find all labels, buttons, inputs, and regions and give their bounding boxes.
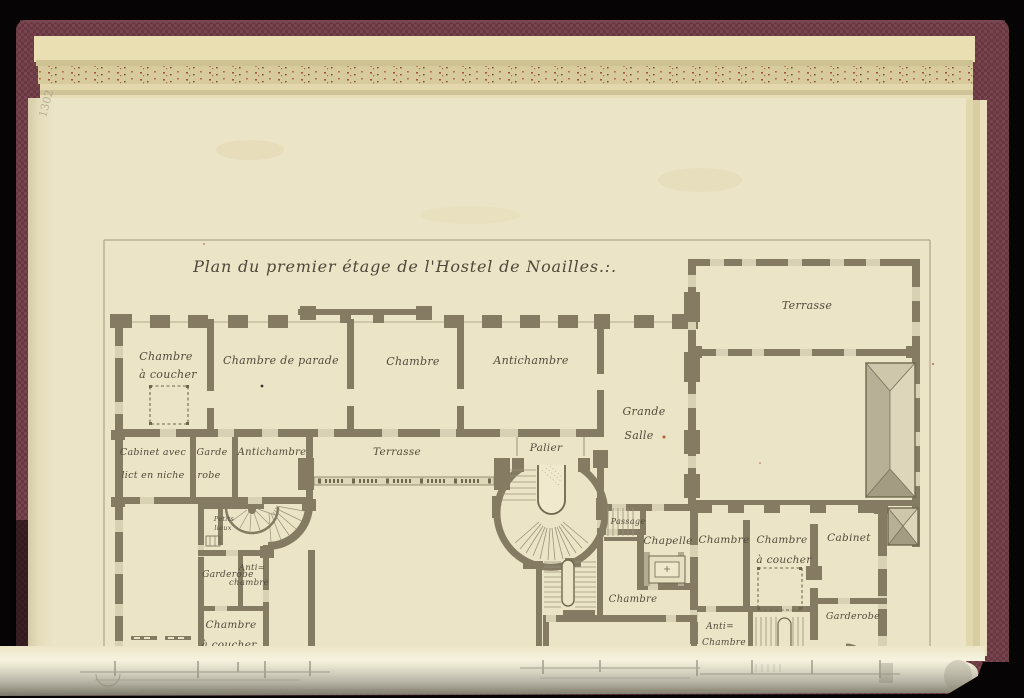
room-label-garderobe-se: Garderobe: [826, 611, 880, 622]
room-label-chambre-n: Chambre: [386, 355, 440, 368]
room-label-grande-salle-2: Salle: [624, 429, 653, 442]
room-label-chambre-a-coucher-nw: Chambre: [139, 350, 193, 363]
room-label-passage: Passage: [610, 517, 646, 526]
book-scan: 1302 Plan du premier étage de l'Hostel d…: [0, 0, 1024, 698]
room-label-cabinet-se: Cabinet: [827, 532, 871, 544]
room-label-terrasse-ne: Terrasse: [782, 299, 832, 312]
room-label-antichambre-n: Antichambre: [492, 354, 569, 367]
room-label-chapelle: Chapelle: [643, 535, 692, 547]
room-label-garde-robe-2: robe: [197, 470, 220, 481]
room-label-chambre-a-coucher-nw-2: à coucher: [139, 368, 197, 381]
room-label-chambre-a-coucher-sw: Chambre: [205, 619, 256, 631]
room-label-chambre-a-coucher-se: Chambre: [756, 534, 807, 546]
room-label-petits-lieux-2: lieux: [214, 524, 231, 532]
room-label-antichambre-sw: Anti=: [238, 563, 265, 573]
room-label-chambre-a-coucher-se-2: à coucher: [756, 554, 812, 566]
room-label-antichambre-sw-2: chambre: [229, 578, 269, 588]
room-label-palier: Palier: [529, 442, 563, 454]
room-label-cabinet-niche: Cabinet avec: [120, 447, 187, 458]
room-label-cabinet-niche-2: lict en niche: [121, 470, 184, 481]
page-curl: [0, 646, 1024, 698]
scanned-book-photo: 1302 Plan du premier étage de l'Hostel d…: [0, 0, 1024, 698]
room-label-garde-robe: Garde: [197, 447, 228, 458]
room-label-antichambre-se: Anti=: [705, 622, 734, 632]
room-label-terrasse-mid: Terrasse: [373, 446, 421, 458]
plan-title: Plan du premier étage de l'Hostel de Noa…: [192, 257, 617, 276]
room-label-chambre-de-parade: Chambre de parade: [223, 354, 339, 367]
room-label-grande-salle: Grande: [622, 405, 665, 418]
room-label-petits-lieux: Petits: [213, 515, 235, 523]
room-label-antichambre-w: Antichambre: [237, 447, 307, 458]
room-label-chambre-se: Chambre: [698, 534, 749, 546]
room-label-chambre-center: Chambre: [609, 594, 658, 605]
